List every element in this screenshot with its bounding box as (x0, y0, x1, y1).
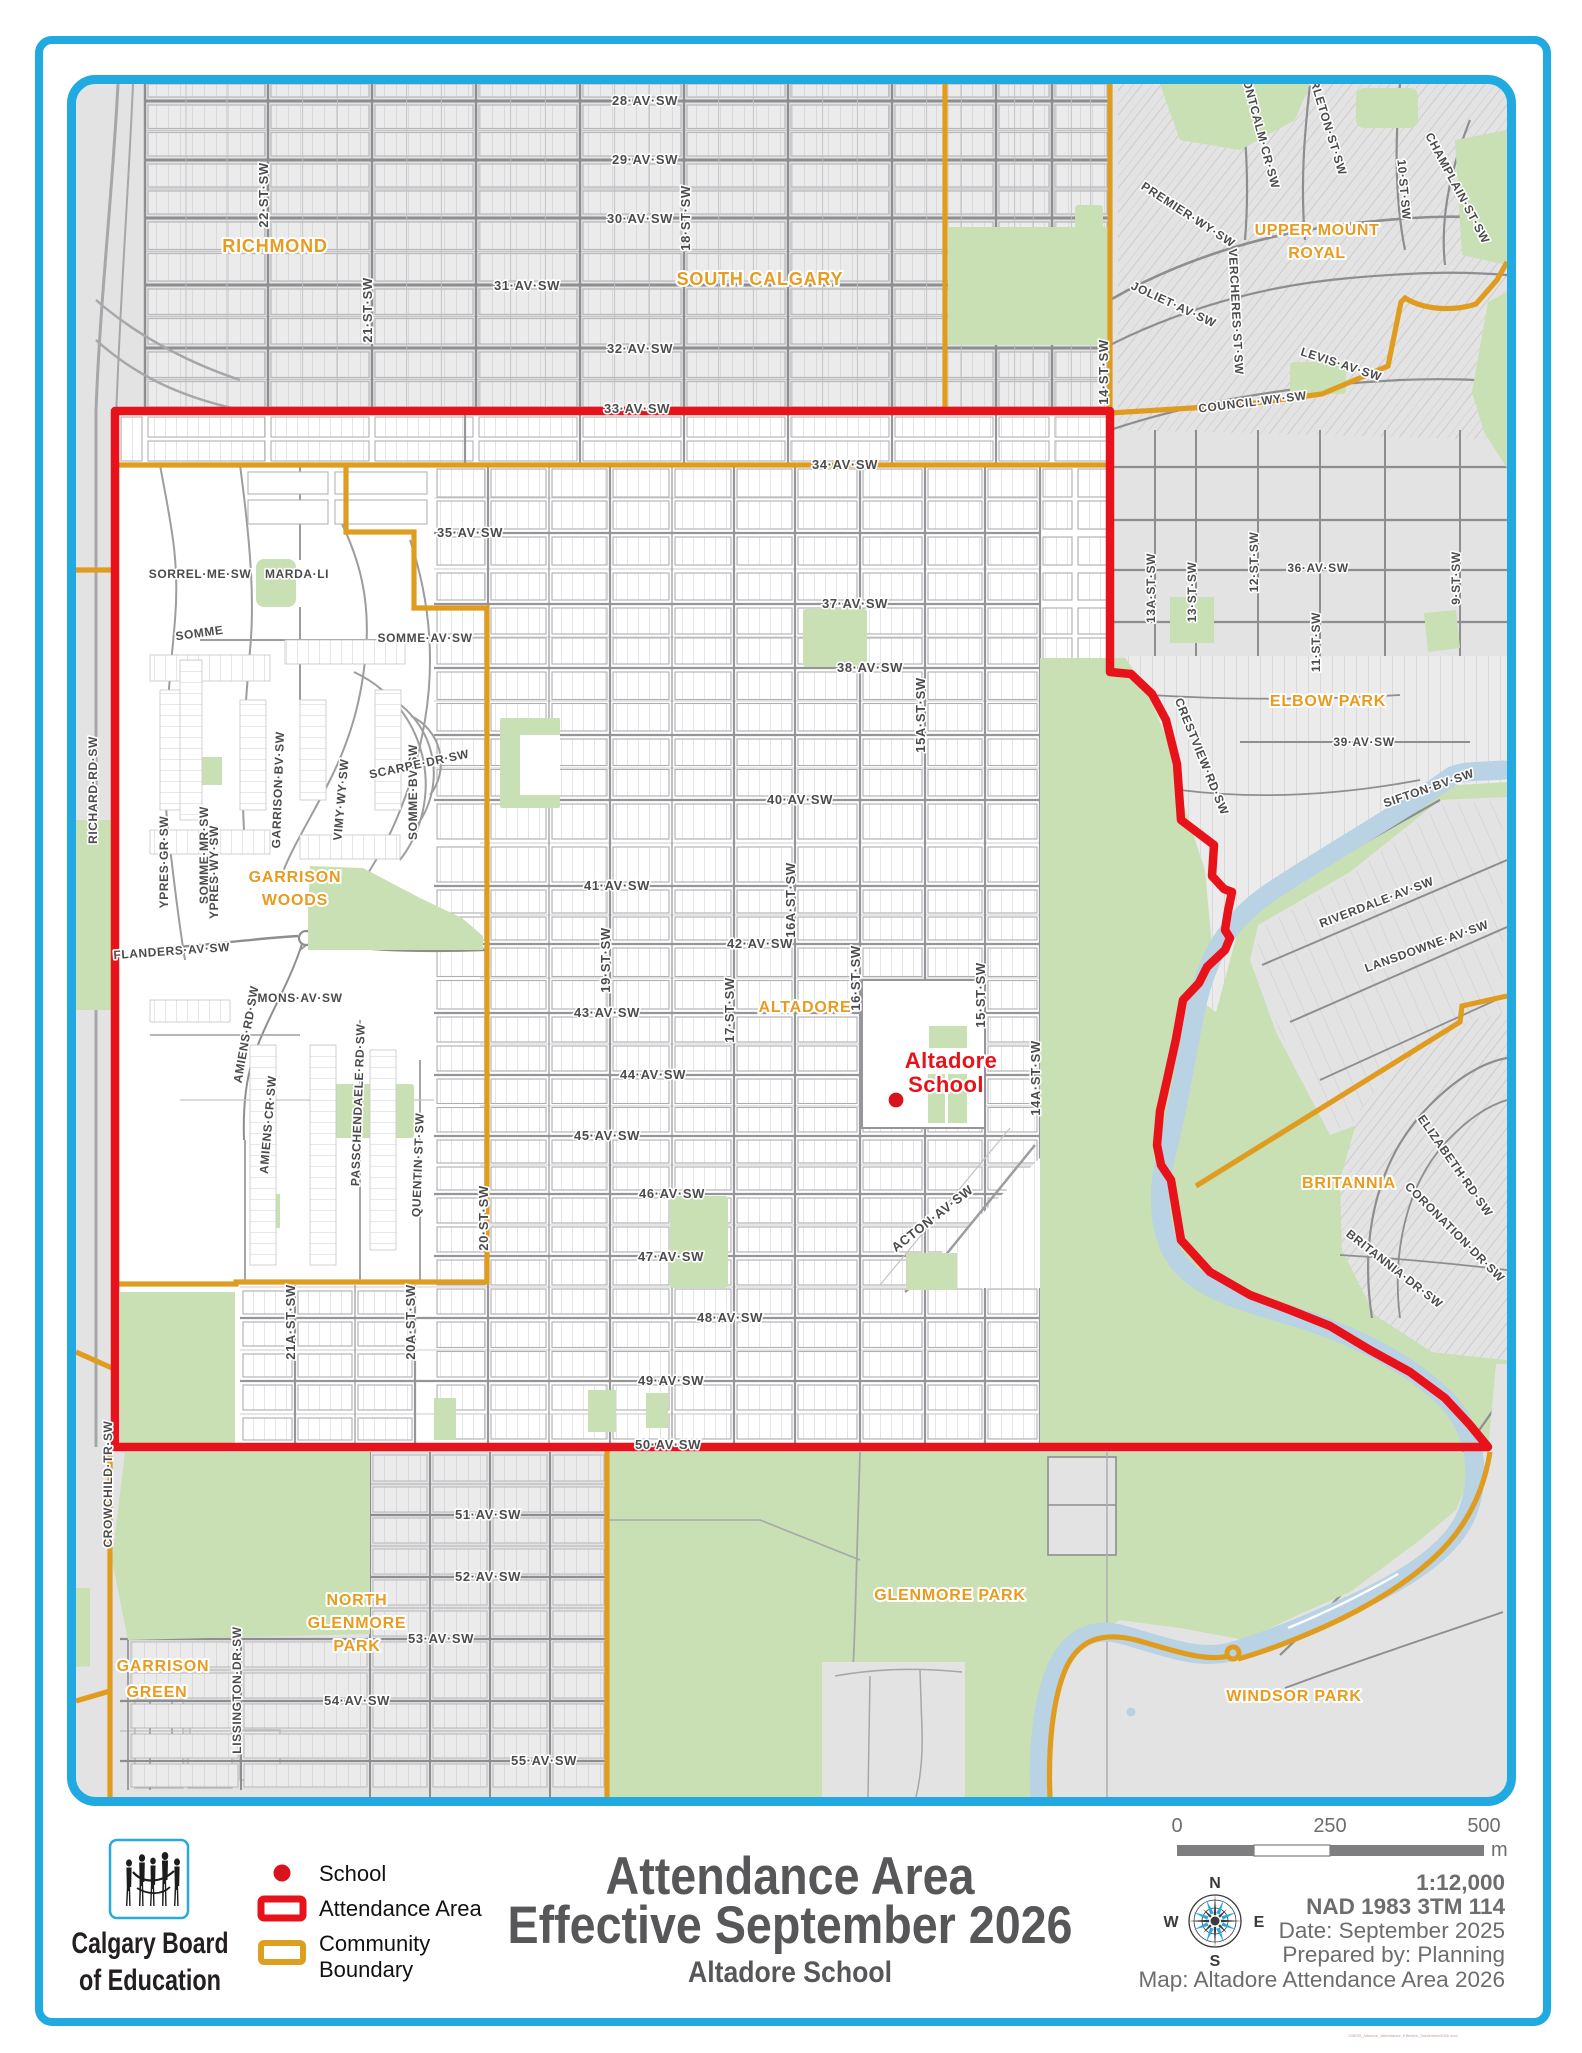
svg-text:20·ST·SW: 20·ST·SW (476, 1185, 491, 1251)
svg-text:9·ST·SW: 9·ST·SW (1449, 551, 1463, 605)
svg-text:Calgary Board: Calgary Board (72, 1927, 229, 1960)
svg-text:N: N (1209, 1875, 1221, 1892)
svg-text:29·AV·SW: 29·AV·SW (612, 152, 678, 167)
svg-text:54·AV·SW: 54·AV·SW (324, 1693, 390, 1708)
svg-text:Boundary: Boundary (319, 1957, 413, 1982)
svg-text:17·ST·SW: 17·ST·SW (722, 977, 737, 1043)
svg-text:PARK: PARK (333, 1638, 380, 1655)
svg-text:NAD 1983 3TM 114: NAD 1983 3TM 114 (1306, 1894, 1505, 1919)
svg-text:School: School (908, 1072, 984, 1097)
svg-text:UPPER MOUNT: UPPER MOUNT (1255, 222, 1380, 239)
svg-text:16A·ST·SW: 16A·ST·SW (783, 862, 798, 938)
svg-text:15A·ST·SW: 15A·ST·SW (913, 677, 928, 753)
svg-text:GREEN: GREEN (127, 1684, 188, 1701)
svg-text:34·AV·SW: 34·AV·SW (812, 457, 878, 472)
svg-text:RICHMOND: RICHMOND (222, 236, 327, 256)
svg-text:12·ST·SW: 12·ST·SW (1247, 532, 1261, 593)
svg-text:43·AV·SW: 43·AV·SW (574, 1005, 640, 1020)
svg-text:CROWCHILD·TR·SW: CROWCHILD·TR·SW (101, 1420, 115, 1547)
svg-text:45·AV·SW: 45·AV·SW (574, 1128, 640, 1143)
svg-text:40·AV·SW: 40·AV·SW (767, 792, 833, 807)
svg-text:13A·ST·SW: 13A·ST·SW (1144, 553, 1158, 623)
svg-text:BRITANNIA: BRITANNIA (1302, 1175, 1396, 1192)
svg-text:WINDSOR PARK: WINDSOR PARK (1226, 1688, 1362, 1705)
svg-text:15·ST·SW: 15·ST·SW (973, 962, 988, 1028)
svg-text:SOMME·AV·SW: SOMME·AV·SW (377, 631, 472, 645)
svg-text:11·ST·SW: 11·ST·SW (1309, 612, 1323, 672)
svg-text:GARRISON: GARRISON (249, 869, 342, 886)
svg-text:14·ST·SW: 14·ST·SW (1096, 339, 1111, 405)
svg-text:Prepared by: Planning: Prepared by: Planning (1282, 1942, 1505, 1967)
svg-text:School: School (319, 1861, 386, 1886)
svg-text:49·AV·SW: 49·AV·SW (638, 1373, 704, 1388)
svg-text:31·AV·SW: 31·AV·SW (494, 278, 560, 293)
svg-text:55·AV·SW: 55·AV·SW (511, 1753, 577, 1768)
svg-text:GLENMORE PARK: GLENMORE PARK (874, 1587, 1025, 1604)
svg-text:Effective September 2026: Effective September 2026 (508, 1896, 1073, 1955)
svg-text:m: m (1491, 1839, 1508, 1861)
svg-text:13·ST·SW: 13·ST·SW (1185, 562, 1199, 623)
svg-text:1:12,000: 1:12,000 (1416, 1870, 1505, 1895)
svg-text:Altadore School: Altadore School (688, 1956, 892, 1989)
svg-text:GLENMORE: GLENMORE (308, 1615, 407, 1632)
svg-text:W: W (1163, 1914, 1179, 1931)
svg-text:LISSINGTON·DR·SW: LISSINGTON·DR·SW (230, 1626, 244, 1753)
svg-text:39·AV·SW: 39·AV·SW (1333, 735, 1394, 749)
svg-text:YPRES·WY·SW: YPRES·WY·SW (207, 825, 221, 919)
svg-text:E: E (1254, 1914, 1265, 1931)
svg-text:30·AV·SW: 30·AV·SW (607, 211, 673, 226)
svg-text:52·AV·SW: 52·AV·SW (455, 1569, 521, 1584)
svg-text:MONS·AV·SW: MONS·AV·SW (257, 991, 342, 1005)
svg-text:NORTH: NORTH (327, 1592, 388, 1609)
svg-text:33·AV·SW: 33·AV·SW (604, 401, 670, 416)
svg-text:41·AV·SW: 41·AV·SW (584, 878, 650, 893)
svg-text:CBE05_Altadore_Attendance_Effe: CBE05_Altadore_Attendance_Effective_Sept… (1348, 2033, 1457, 2038)
svg-text:ALTADORE: ALTADORE (759, 999, 852, 1016)
svg-text:28·AV·SW: 28·AV·SW (612, 93, 678, 108)
svg-text:46·AV·SW: 46·AV·SW (639, 1186, 705, 1201)
svg-text:14A·ST·SW: 14A·ST·SW (1028, 1040, 1043, 1116)
svg-text:ROYAL: ROYAL (1288, 245, 1346, 262)
svg-text:47·AV·SW: 47·AV·SW (638, 1249, 704, 1264)
svg-text:MARDA·LI: MARDA·LI (265, 567, 329, 581)
svg-text:0: 0 (1171, 1815, 1182, 1837)
svg-text:38·AV·SW: 38·AV·SW (837, 660, 903, 675)
svg-text:19·ST·SW: 19·ST·SW (598, 927, 613, 993)
svg-text:Date: September 2025: Date: September 2025 (1279, 1918, 1505, 1943)
svg-text:37·AV·SW: 37·AV·SW (822, 596, 888, 611)
svg-text:of Education: of Education (79, 1964, 221, 1997)
svg-text:44·AV·SW: 44·AV·SW (620, 1067, 686, 1082)
svg-text:18·ST·SW: 18·ST·SW (678, 185, 693, 251)
svg-text:Community: Community (319, 1931, 430, 1956)
svg-text:22·ST·SW: 22·ST·SW (256, 162, 271, 228)
svg-text:21A·ST·SW: 21A·ST·SW (283, 1284, 298, 1360)
svg-text:Altadore: Altadore (905, 1048, 997, 1073)
svg-text:SOUTH CALGARY: SOUTH CALGARY (677, 269, 844, 289)
svg-text:36·AV·SW: 36·AV·SW (1287, 561, 1348, 575)
svg-text:32·AV·SW: 32·AV·SW (607, 341, 673, 356)
svg-text:Map: Altadore Attendance Area: Map: Altadore Attendance Area 2026 (1138, 1967, 1505, 1992)
svg-text:53·AV·SW: 53·AV·SW (408, 1631, 474, 1646)
svg-text:35·AV·SW: 35·AV·SW (437, 525, 503, 540)
svg-text:GARRISON: GARRISON (117, 1658, 210, 1675)
svg-text:SORREL·ME·SW: SORREL·ME·SW (149, 567, 252, 581)
svg-text:50·AV·SW: 50·AV·SW (635, 1437, 701, 1452)
svg-text:20A·ST·SW: 20A·ST·SW (403, 1284, 418, 1360)
svg-text:250: 250 (1313, 1815, 1346, 1837)
svg-text:YPRES·GR·SW: YPRES·GR·SW (157, 816, 171, 909)
svg-text:WOODS: WOODS (262, 892, 328, 909)
svg-text:RICHARD·RD·SW: RICHARD·RD·SW (86, 736, 100, 844)
svg-text:500: 500 (1467, 1815, 1500, 1837)
svg-text:Attendance Area: Attendance Area (319, 1896, 482, 1921)
svg-text:48·AV·SW: 48·AV·SW (697, 1310, 763, 1325)
svg-text:51·AV·SW: 51·AV·SW (455, 1507, 521, 1522)
svg-text:ELBOW PARK: ELBOW PARK (1270, 693, 1386, 710)
svg-text:21·ST·SW: 21·ST·SW (360, 277, 375, 343)
